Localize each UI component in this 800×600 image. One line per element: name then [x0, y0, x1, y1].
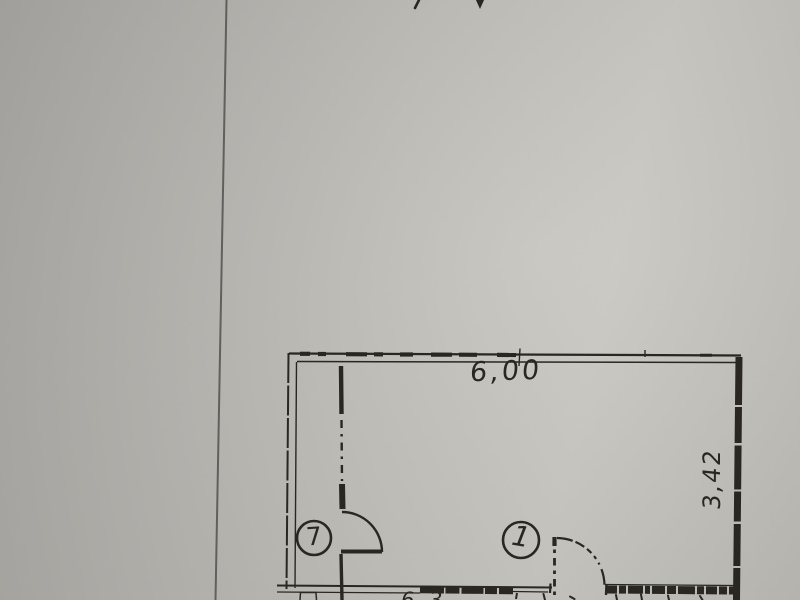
door-right	[555, 537, 605, 600]
wall-bottom-right	[605, 584, 734, 595]
dimension-label-bottom-partial: 6,3	[400, 590, 448, 600]
partition-dashed-segment	[342, 420, 343, 481]
wall-right	[737, 357, 740, 600]
partition-wall	[341, 366, 343, 600]
wall-left	[287, 353, 297, 589]
door-right-swing-arc	[557, 538, 605, 585]
door-left-swing-arc	[342, 512, 382, 552]
cutoff-letter-mark	[476, 0, 485, 9]
wall-bottom-right-hatch	[606, 590, 734, 591]
dimension-label-right-height: 3,42	[700, 442, 724, 517]
top-cutoff-marks	[415, 0, 485, 9]
cutoff-comma-mark	[415, 0, 420, 8]
pier-below-wall	[300, 593, 317, 600]
bottom-cutoff-marks	[544, 594, 703, 600]
wall-end-cap	[606, 584, 607, 595]
door-left	[341, 512, 382, 552]
photographed-floor-plan-page: 6,00 3,42 6,3 7 1	[0, 0, 800, 600]
floor-plan-drawing	[0, 0, 800, 600]
dimension-label-top-width: 6,00	[469, 357, 543, 387]
cutoff-mark	[516, 593, 517, 599]
room-number-7: 7	[302, 523, 326, 549]
wall-end-cap	[550, 584, 551, 594]
